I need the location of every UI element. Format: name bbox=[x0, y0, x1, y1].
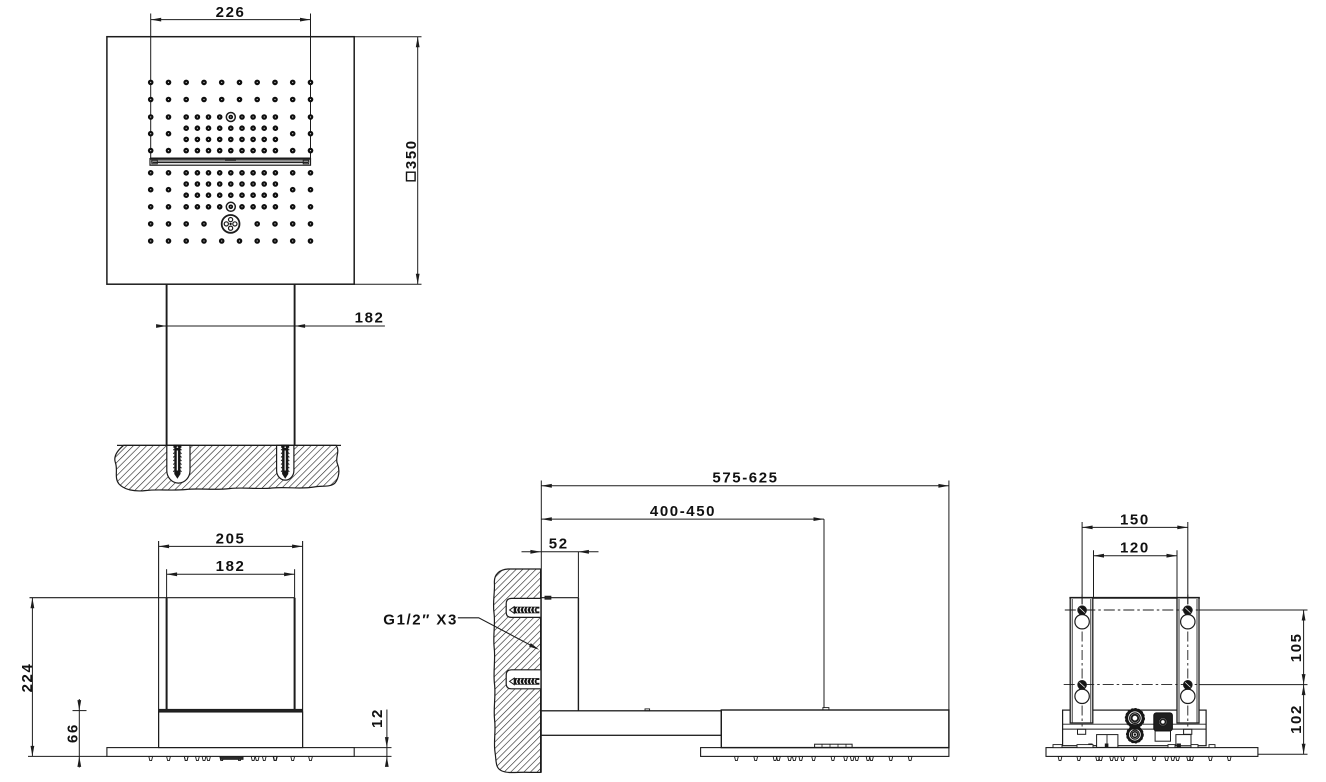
svg-text:66: 66 bbox=[65, 723, 82, 743]
svg-text:205: 205 bbox=[216, 530, 246, 547]
svg-text:X3: X3 bbox=[436, 611, 458, 628]
svg-text:182: 182 bbox=[216, 558, 246, 575]
svg-text:400-450: 400-450 bbox=[650, 503, 716, 520]
svg-text:52: 52 bbox=[549, 535, 569, 552]
svg-text:120: 120 bbox=[1120, 540, 1150, 557]
svg-text:G1/2″: G1/2″ bbox=[383, 611, 431, 628]
svg-text:224: 224 bbox=[19, 663, 36, 693]
svg-text:350: 350 bbox=[403, 139, 420, 169]
svg-text:150: 150 bbox=[1120, 511, 1150, 528]
svg-text:12: 12 bbox=[369, 708, 386, 728]
svg-text:575-625: 575-625 bbox=[712, 470, 778, 487]
svg-text:105: 105 bbox=[1288, 632, 1305, 662]
svg-text:182: 182 bbox=[355, 310, 385, 327]
svg-text:102: 102 bbox=[1288, 704, 1305, 734]
svg-text:226: 226 bbox=[216, 4, 246, 21]
